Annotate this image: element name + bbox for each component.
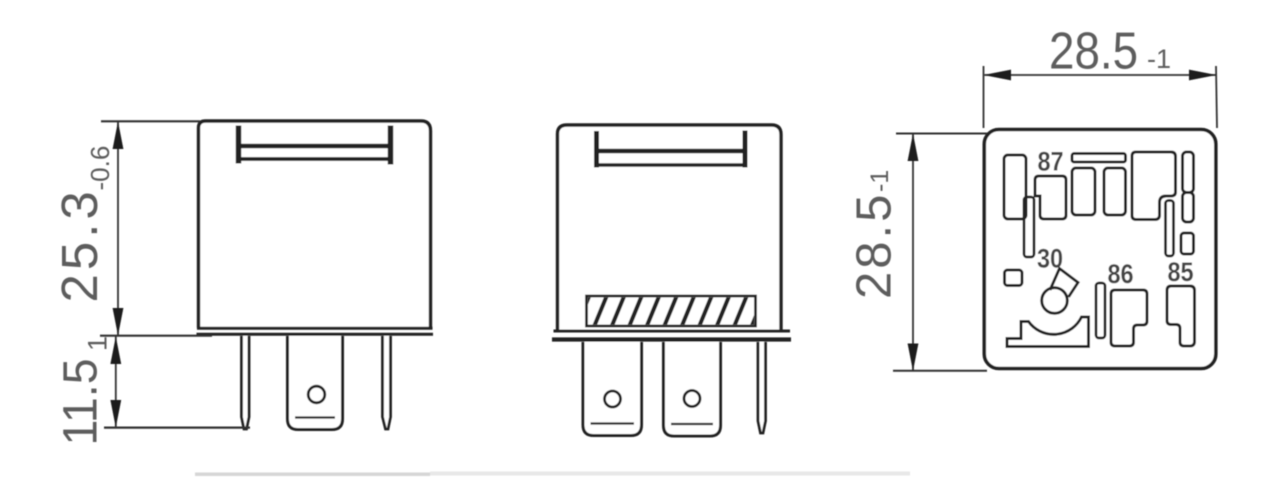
svg-text:86: 86 <box>1107 260 1133 290</box>
svg-text:-0.6: -0.6 <box>85 146 115 191</box>
svg-text:28.5: 28.5 <box>1049 23 1138 80</box>
svg-text:-1: -1 <box>866 170 894 192</box>
svg-text:28.5: 28.5 <box>848 192 902 299</box>
svg-text:-1: -1 <box>1147 44 1171 74</box>
svg-text:11.5: 11.5 <box>54 358 108 445</box>
svg-text:85: 85 <box>1167 258 1193 288</box>
svg-text:1: 1 <box>83 336 113 351</box>
svg-text:87: 87 <box>1037 147 1063 177</box>
svg-text:25.3: 25.3 <box>51 187 108 302</box>
